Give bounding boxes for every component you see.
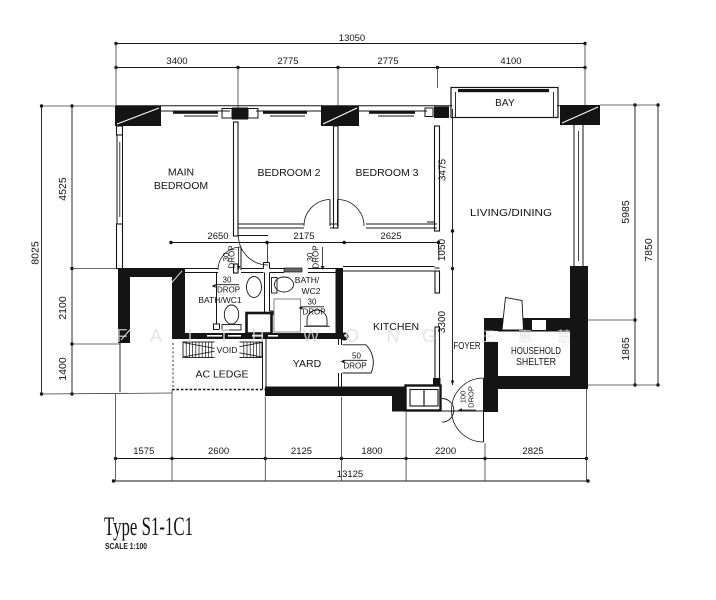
svg-text:2625: 2625 [380,231,401,242]
svg-text:LIVING/DINING: LIVING/DINING [470,207,552,219]
svg-text:BEDROOM 2: BEDROOM 2 [257,167,320,179]
svg-text:DROP: DROP [302,308,325,317]
svg-text:1050: 1050 [437,238,448,261]
svg-text:F: F [117,326,128,346]
svg-text:BAY: BAY [495,98,515,109]
svg-text:BEDROOM 3: BEDROOM 3 [355,167,418,179]
svg-text:30: 30 [308,298,317,307]
svg-text:13050: 13050 [339,33,365,44]
svg-text:DROP: DROP [217,286,240,295]
svg-text:WC2: WC2 [302,286,321,296]
svg-text:SHELTER: SHELTER [516,356,556,368]
svg-text:BATH/: BATH/ [295,275,320,285]
svg-text:5985: 5985 [620,200,632,224]
svg-text:1575: 1575 [133,446,154,457]
svg-text:王: 王 [481,329,495,345]
svg-text:SCALE 1:100: SCALE 1:100 [105,541,147,551]
svg-text:2175: 2175 [293,231,314,242]
svg-text:50: 50 [352,352,361,361]
svg-text:3400: 3400 [166,56,187,67]
svg-text:VOID: VOID [217,345,238,355]
svg-text:YARD: YARD [293,358,322,370]
svg-text:FOYER: FOYER [454,340,481,352]
svg-text:4100: 4100 [500,56,521,67]
svg-text:2775: 2775 [377,56,398,67]
svg-text:A: A [150,326,162,346]
svg-text:8025: 8025 [30,241,42,265]
svg-text:4525: 4525 [57,177,69,201]
svg-text:BEDROOM: BEDROOM [154,180,208,192]
svg-text:2825: 2825 [522,446,543,457]
svg-text:DROP: DROP [228,245,237,268]
svg-text:G: G [422,326,436,346]
svg-text:O: O [345,326,359,346]
svg-text:MAIN: MAIN [168,167,194,179]
svg-text:1400: 1400 [57,357,69,381]
svg-text:DROP: DROP [312,245,321,268]
svg-text:1865: 1865 [620,337,632,361]
svg-text:AC LEDGE: AC LEDGE [195,369,248,381]
svg-text:13125: 13125 [337,469,363,480]
svg-text:2100: 2100 [57,296,69,320]
svg-text:2200: 2200 [435,446,456,457]
svg-text:3300: 3300 [437,310,448,333]
svg-text:H: H [252,326,265,346]
svg-text:BATH/WC1: BATH/WC1 [198,295,242,305]
svg-text:DROP: DROP [343,362,366,371]
svg-text:惠: 惠 [518,329,532,345]
svg-text:1800: 1800 [361,446,382,457]
svg-text:2650: 2650 [207,231,228,242]
svg-text:I: I [187,326,192,346]
svg-text:慧: 慧 [557,329,571,345]
svg-text:Type S1-1C1: Type S1-1C1 [104,512,193,541]
svg-text:2600: 2600 [208,446,229,457]
svg-text:T: T [219,326,230,346]
svg-text:2775: 2775 [277,56,298,67]
svg-text:DROP: DROP [467,386,476,408]
svg-text:W: W [303,326,320,346]
svg-text:2125: 2125 [291,446,312,457]
svg-text:7850: 7850 [643,238,655,262]
svg-text:N: N [387,326,400,346]
svg-text:30: 30 [223,276,232,285]
